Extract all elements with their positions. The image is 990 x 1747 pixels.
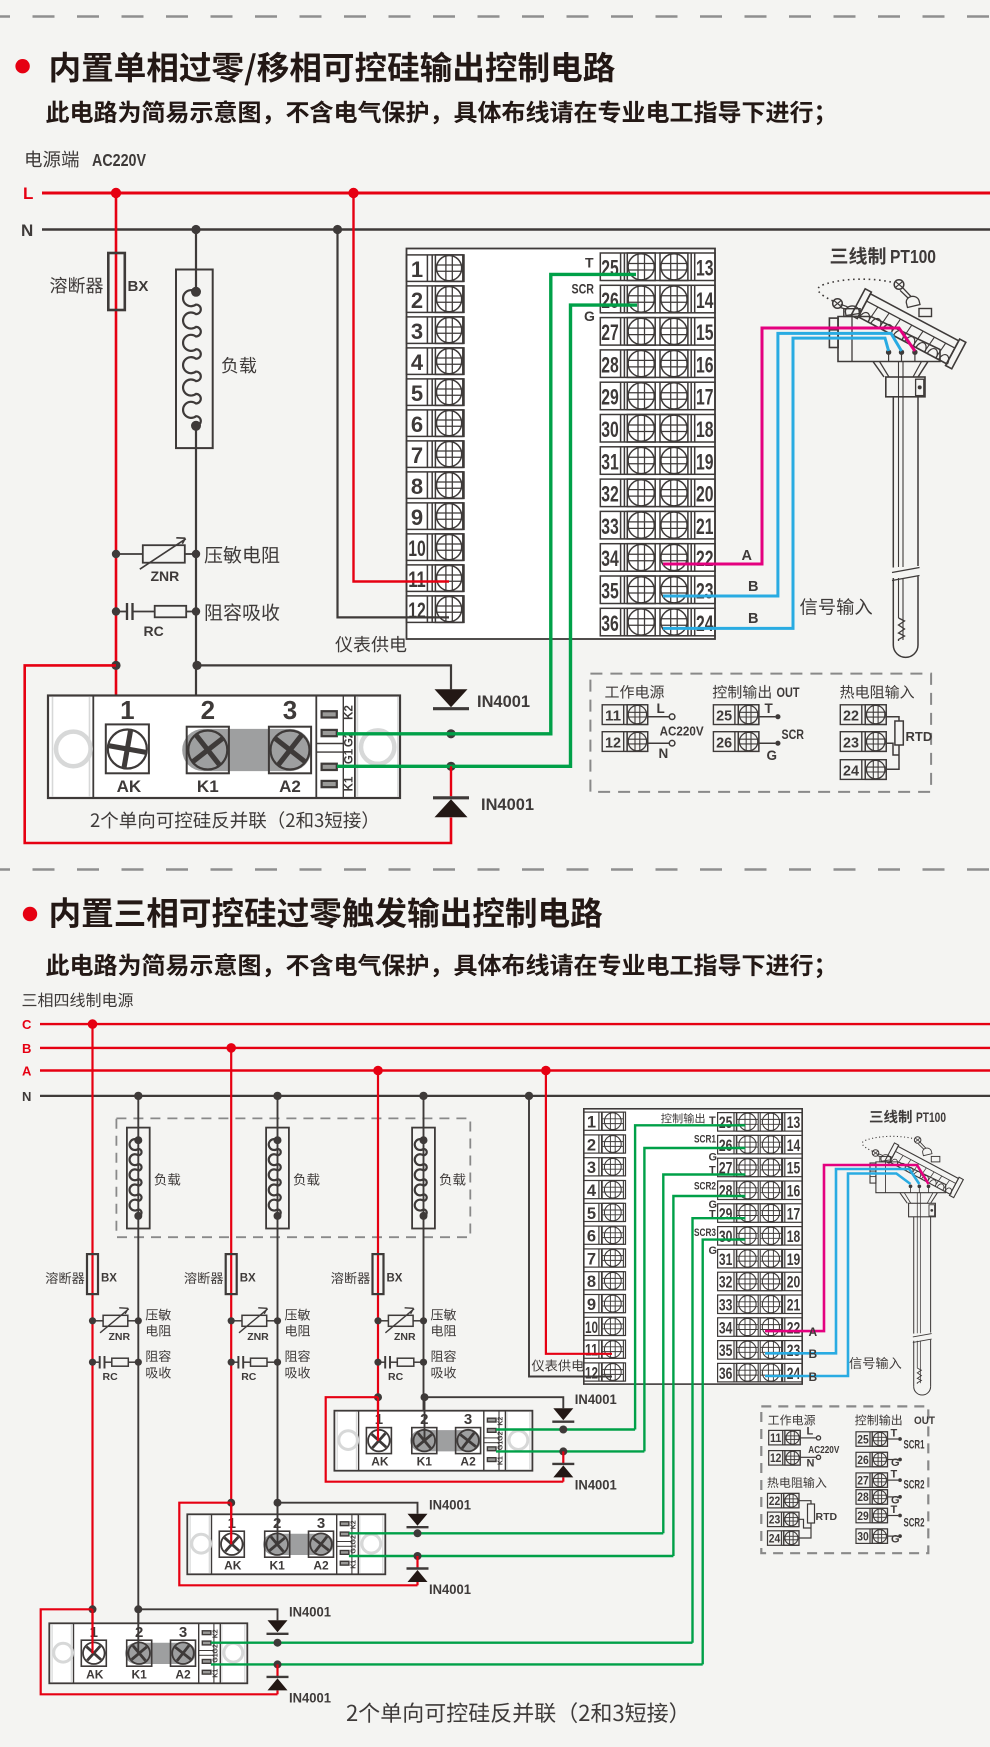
svg-text:K1: K1 (270, 1558, 286, 1572)
svg-text:28: 28 (601, 352, 619, 377)
svg-text:IN4001: IN4001 (429, 1498, 471, 1513)
svg-text:4: 4 (411, 350, 424, 375)
svg-text:34: 34 (719, 1319, 733, 1337)
svg-text:14: 14 (696, 288, 714, 313)
svg-text:N: N (21, 221, 33, 240)
svg-text:IN4001: IN4001 (575, 1477, 617, 1492)
svg-text:K1: K1 (212, 1669, 219, 1678)
svg-text:24: 24 (696, 611, 714, 636)
svg-text:A2: A2 (313, 1558, 329, 1572)
svg-text:K1: K1 (417, 1455, 433, 1469)
svg-text:3: 3 (179, 1624, 187, 1641)
svg-text:2: 2 (587, 1136, 596, 1154)
svg-text:18: 18 (696, 417, 714, 442)
svg-text:B: B (809, 1347, 818, 1361)
svg-text:IN4001: IN4001 (575, 1392, 617, 1407)
svg-text:L: L (807, 1426, 814, 1438)
svg-text:16: 16 (787, 1183, 801, 1201)
svg-text:1: 1 (90, 1624, 98, 1641)
svg-text:C: C (22, 1017, 32, 1032)
svg-text:6: 6 (411, 412, 423, 437)
svg-text:5: 5 (587, 1205, 596, 1223)
svg-text:G1: G1 (212, 1653, 219, 1662)
svg-text:K1: K1 (132, 1667, 148, 1681)
svg-text:SCR3: SCR3 (694, 1227, 716, 1239)
svg-text:T: T (765, 701, 774, 716)
svg-text:5: 5 (411, 381, 423, 406)
svg-text:11: 11 (408, 567, 426, 592)
svg-text:31: 31 (719, 1251, 733, 1269)
svg-text:31: 31 (601, 449, 619, 474)
svg-text:G2: G2 (212, 1644, 219, 1653)
svg-text:K1: K1 (497, 1456, 504, 1465)
svg-text:G: G (584, 308, 595, 324)
svg-text:20: 20 (696, 482, 714, 507)
svg-text:4: 4 (587, 1182, 597, 1200)
svg-text:29: 29 (857, 1509, 869, 1523)
svg-text:SCR: SCR (572, 282, 595, 297)
svg-text:K1: K1 (350, 1560, 357, 1569)
svg-text:11: 11 (605, 708, 621, 725)
svg-text:ZNR: ZNR (151, 568, 180, 584)
svg-text:23: 23 (787, 1342, 801, 1360)
svg-text:30: 30 (719, 1228, 733, 1246)
svg-text:12: 12 (770, 1451, 782, 1465)
svg-text:16: 16 (696, 352, 714, 377)
svg-text:21: 21 (696, 514, 714, 539)
svg-text:SCR2: SCR2 (694, 1181, 716, 1193)
svg-text:23: 23 (696, 579, 714, 604)
svg-text:6: 6 (587, 1228, 596, 1246)
svg-text:G1: G1 (343, 748, 355, 764)
svg-text:AK: AK (86, 1667, 104, 1681)
svg-text:26: 26 (857, 1453, 869, 1467)
svg-text:30: 30 (857, 1529, 869, 1543)
svg-text:24: 24 (787, 1365, 801, 1383)
svg-text:IN4001: IN4001 (477, 693, 530, 711)
svg-text:RC: RC (103, 1371, 119, 1383)
svg-text:BX: BX (101, 1273, 117, 1285)
svg-text:PT100: PT100 (890, 246, 936, 267)
svg-text:36: 36 (601, 611, 619, 636)
svg-text:OUT: OUT (777, 685, 801, 700)
svg-text:29: 29 (719, 1205, 733, 1223)
svg-text:3: 3 (587, 1159, 596, 1177)
svg-text:26: 26 (601, 288, 619, 313)
svg-text:12: 12 (585, 1364, 598, 1382)
svg-text:N: N (807, 1458, 815, 1470)
svg-text:SCR1: SCR1 (904, 1438, 925, 1452)
svg-text:13: 13 (696, 256, 714, 281)
svg-text:AK: AK (224, 1558, 242, 1572)
svg-text:RC: RC (144, 623, 164, 639)
svg-text:7: 7 (411, 443, 423, 468)
svg-text:T: T (891, 1504, 898, 1516)
svg-text:1: 1 (587, 1114, 596, 1132)
svg-text:3: 3 (411, 319, 423, 344)
svg-text:T: T (585, 255, 594, 271)
svg-text:IN4001: IN4001 (429, 1582, 471, 1597)
svg-text:K2: K2 (497, 1417, 504, 1426)
svg-text:8: 8 (587, 1273, 596, 1291)
svg-text:AC220V: AC220V (660, 724, 704, 739)
svg-text:29: 29 (601, 385, 619, 410)
svg-text:26: 26 (719, 1137, 733, 1155)
svg-text:B: B (748, 611, 758, 627)
svg-text:G: G (709, 1152, 718, 1164)
svg-text:35: 35 (601, 579, 619, 604)
svg-text:SCR2: SCR2 (904, 1478, 925, 1492)
svg-text:OUT: OUT (914, 1415, 935, 1427)
svg-text:AK: AK (117, 777, 142, 796)
svg-text:7: 7 (587, 1250, 596, 1268)
svg-text:27: 27 (857, 1473, 869, 1487)
svg-text:20: 20 (787, 1274, 801, 1292)
svg-text:A2: A2 (460, 1455, 476, 1469)
svg-text:23: 23 (843, 734, 859, 751)
svg-text:AC220V: AC220V (808, 1444, 839, 1456)
svg-text:AK: AK (371, 1455, 389, 1469)
svg-text:A: A (22, 1064, 32, 1079)
svg-text:25: 25 (719, 1114, 733, 1132)
svg-text:ZNR: ZNR (394, 1331, 416, 1343)
svg-text:G1: G1 (497, 1441, 504, 1450)
svg-text:35: 35 (719, 1342, 733, 1360)
svg-text:22: 22 (696, 546, 714, 571)
svg-text:24: 24 (769, 1531, 781, 1545)
svg-text:N: N (659, 746, 669, 761)
svg-text:25: 25 (716, 708, 732, 725)
svg-text:N: N (22, 1089, 31, 1104)
svg-text:IN4001: IN4001 (481, 796, 534, 814)
svg-text:ZNR: ZNR (109, 1331, 131, 1343)
svg-text:RTD: RTD (906, 729, 933, 744)
svg-text:G1: G1 (350, 1544, 357, 1553)
svg-text:A2: A2 (175, 1667, 191, 1681)
svg-text:19: 19 (787, 1251, 801, 1269)
svg-text:B: B (809, 1370, 818, 1384)
svg-text:BX: BX (128, 278, 149, 295)
svg-text:BX: BX (240, 1273, 256, 1285)
svg-text:ZNR: ZNR (247, 1331, 269, 1343)
svg-text:K1: K1 (197, 777, 219, 796)
svg-text:IN4001: IN4001 (289, 1690, 331, 1705)
svg-text:RC: RC (241, 1371, 257, 1383)
svg-text:33: 33 (719, 1297, 733, 1315)
svg-text:A: A (809, 1325, 818, 1339)
svg-text:12: 12 (605, 734, 621, 751)
svg-text:A2: A2 (279, 777, 301, 796)
svg-text:13: 13 (787, 1114, 801, 1132)
svg-text:36: 36 (719, 1365, 733, 1383)
svg-text:23: 23 (769, 1513, 781, 1527)
svg-text:9: 9 (411, 505, 423, 530)
svg-text:K2: K2 (350, 1520, 357, 1529)
svg-text:T: T (891, 1468, 898, 1480)
svg-text:12: 12 (408, 598, 426, 623)
svg-text:SCR1: SCR1 (694, 1134, 716, 1146)
svg-text:15: 15 (696, 320, 714, 345)
svg-text:L: L (23, 184, 33, 203)
svg-text:SCR2: SCR2 (904, 1516, 925, 1530)
svg-text:25: 25 (601, 256, 619, 281)
svg-text:30: 30 (601, 417, 619, 442)
svg-text:L: L (657, 701, 665, 716)
svg-text:G: G (891, 1534, 900, 1546)
svg-text:AC220V: AC220V (92, 150, 146, 170)
svg-text:3: 3 (283, 695, 297, 725)
svg-text:11: 11 (770, 1431, 782, 1445)
svg-text:21: 21 (787, 1297, 801, 1315)
svg-text:10: 10 (408, 536, 426, 561)
svg-text:11: 11 (585, 1342, 598, 1360)
svg-text:B: B (748, 579, 758, 595)
svg-text:28: 28 (719, 1183, 733, 1201)
svg-text:A: A (742, 548, 753, 564)
svg-text:26: 26 (716, 734, 732, 751)
svg-text:K2: K2 (343, 705, 355, 720)
svg-text:1: 1 (411, 257, 423, 282)
svg-text:G2: G2 (497, 1431, 504, 1440)
svg-text:G: G (767, 748, 778, 763)
svg-text:RTD: RTD (816, 1511, 838, 1523)
svg-text:25: 25 (857, 1432, 869, 1446)
svg-text:27: 27 (601, 320, 619, 345)
svg-text:RC: RC (388, 1371, 404, 1383)
svg-text:IN4001: IN4001 (289, 1604, 331, 1619)
svg-text:14: 14 (787, 1137, 801, 1155)
svg-text:2: 2 (411, 288, 423, 313)
svg-text:3: 3 (464, 1411, 472, 1428)
svg-text:33: 33 (601, 514, 619, 539)
svg-text:28: 28 (857, 1490, 869, 1504)
svg-text:G: G (891, 1457, 900, 1469)
svg-text:19: 19 (696, 449, 714, 474)
svg-text:PT100: PT100 (916, 1109, 946, 1125)
svg-text:B: B (22, 1041, 31, 1056)
svg-text:1: 1 (120, 695, 134, 725)
svg-text:K1: K1 (343, 776, 355, 791)
svg-text:34: 34 (601, 546, 619, 571)
svg-text:10: 10 (585, 1319, 598, 1337)
svg-text:22: 22 (769, 1494, 781, 1508)
svg-text:3: 3 (317, 1515, 325, 1532)
svg-text:32: 32 (601, 482, 619, 507)
svg-text:SCR: SCR (782, 727, 805, 742)
svg-text:32: 32 (719, 1274, 733, 1292)
svg-text:22: 22 (843, 708, 859, 725)
svg-text:18: 18 (787, 1228, 801, 1246)
svg-text:G2: G2 (350, 1535, 357, 1544)
svg-text:T: T (891, 1427, 898, 1439)
svg-text:9: 9 (587, 1296, 596, 1314)
svg-text:17: 17 (787, 1205, 801, 1223)
svg-text:8: 8 (411, 474, 423, 499)
svg-text:22: 22 (787, 1319, 801, 1337)
svg-text:G: G (709, 1245, 718, 1257)
svg-text:BX: BX (387, 1273, 403, 1285)
svg-text:K2: K2 (212, 1629, 219, 1638)
svg-text:15: 15 (787, 1160, 801, 1178)
svg-text:2: 2 (201, 695, 215, 725)
svg-text:24: 24 (843, 762, 860, 779)
svg-text:17: 17 (696, 385, 714, 410)
